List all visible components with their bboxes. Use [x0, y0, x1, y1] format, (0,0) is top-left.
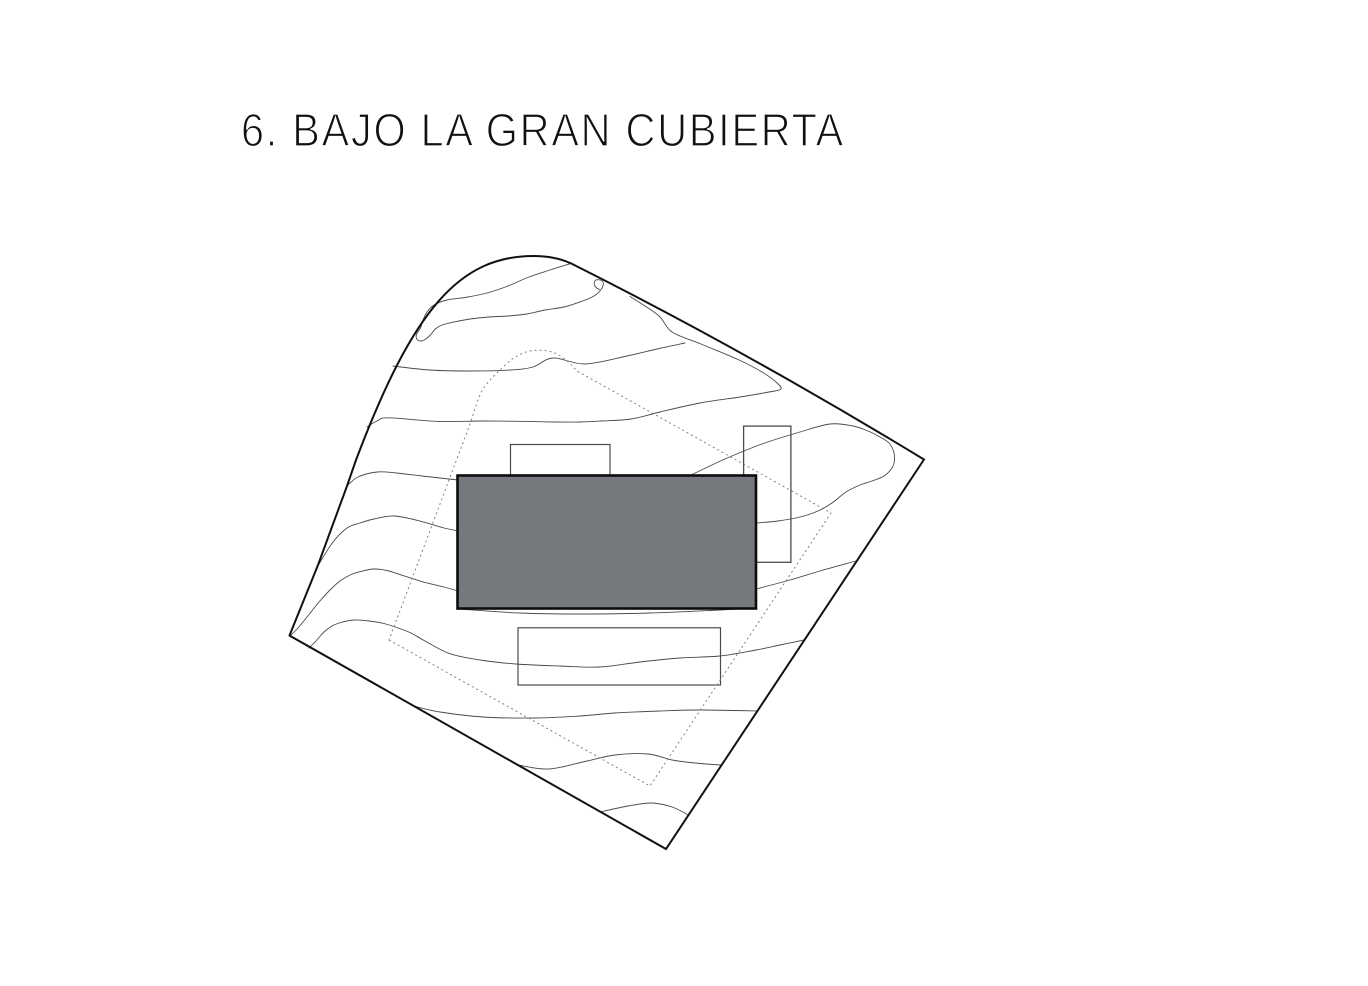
svg-text:6. BAJO LA GRAN CUBIERTA: 6. BAJO LA GRAN CUBIERTA: [241, 104, 845, 156]
